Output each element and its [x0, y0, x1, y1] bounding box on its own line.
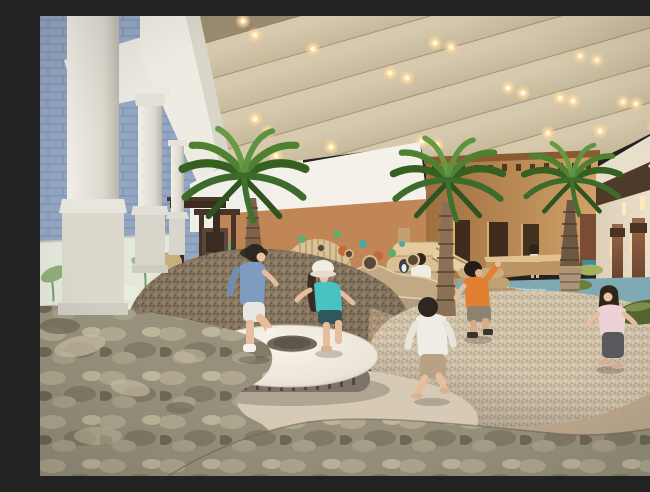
scene-canvas [40, 16, 650, 476]
rendering-scene: Indoor kids' sand-play lounge — architec… [40, 16, 650, 476]
vignette [40, 16, 650, 476]
